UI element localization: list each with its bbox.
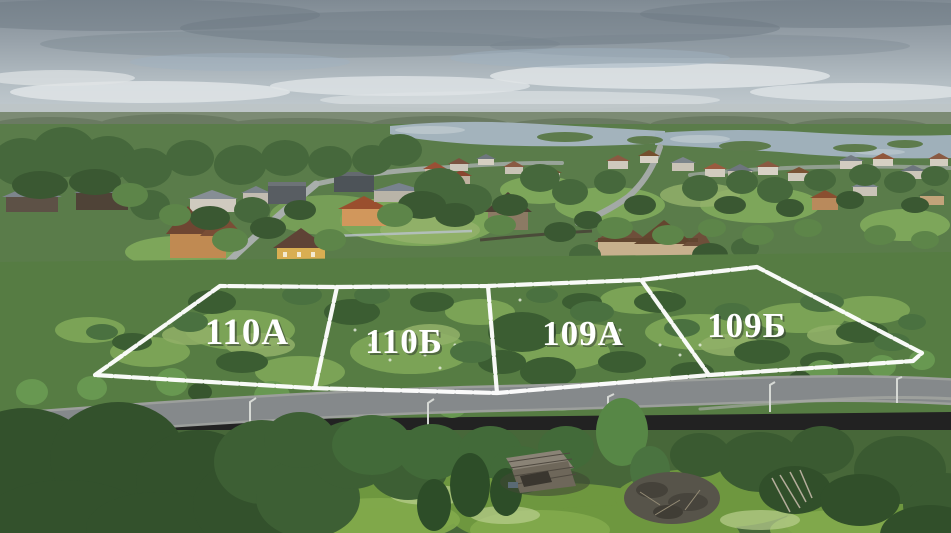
foreground-vegetation bbox=[0, 398, 951, 533]
plot-label-110b: 110Б bbox=[365, 322, 443, 361]
aerial-photo: 110А 110А 110Б 110Б 109А 109А 109Б 109Б bbox=[0, 0, 951, 533]
aerial-photo-canvas: 110А 110А 110Б 110Б 109А 109А 109Б 109Б bbox=[0, 0, 951, 533]
plot-label-110a: 110А bbox=[205, 312, 289, 353]
debris-pile bbox=[624, 472, 720, 524]
cloud-layer bbox=[0, 0, 951, 109]
plot-label-109a: 109А bbox=[542, 314, 624, 353]
plot-label-109b: 109Б bbox=[707, 306, 787, 345]
